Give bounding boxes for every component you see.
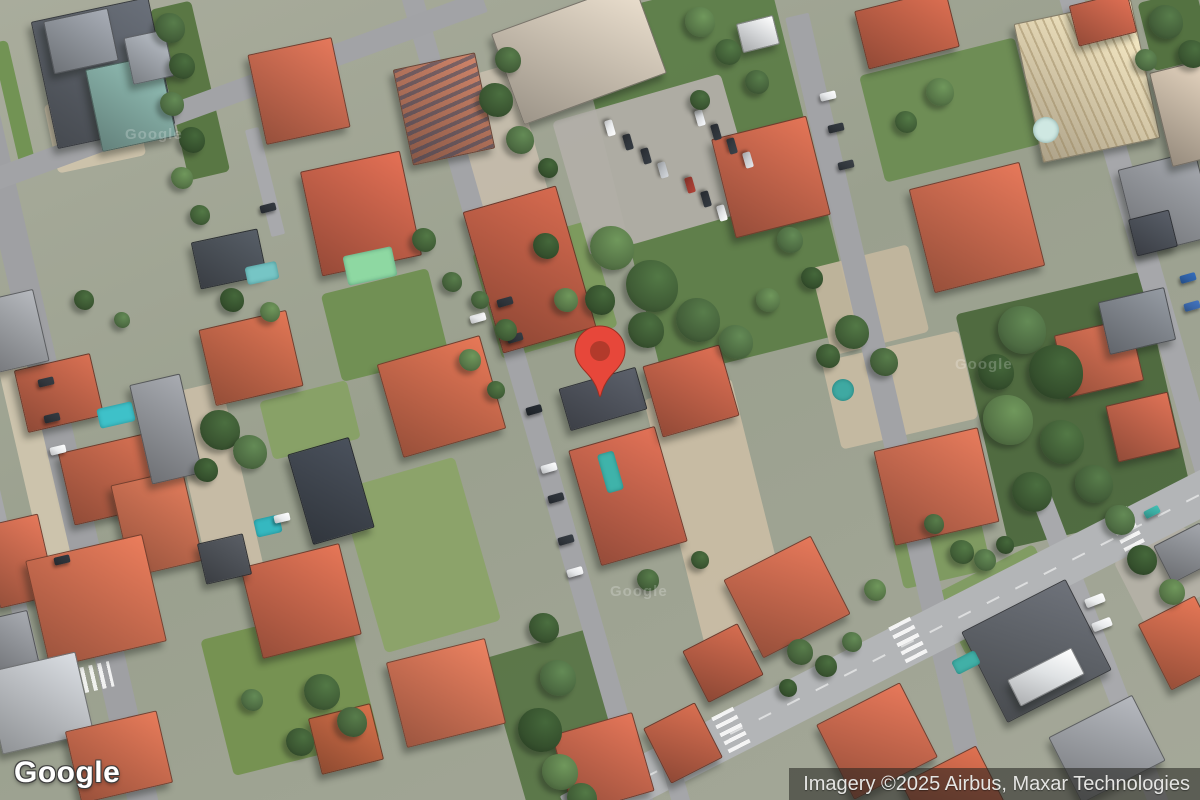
tree (179, 127, 205, 153)
building (386, 638, 506, 748)
ground-patch (339, 457, 501, 653)
tree (801, 267, 823, 289)
tree (983, 395, 1033, 445)
tree (1075, 465, 1113, 503)
tree (220, 288, 244, 312)
imagery-watermark: Google (610, 583, 668, 600)
tree (171, 167, 193, 189)
building (1128, 209, 1178, 256)
parked-car (1179, 272, 1197, 284)
building (909, 161, 1045, 292)
tree (554, 288, 578, 312)
tree (974, 549, 996, 571)
tree (540, 660, 576, 696)
tree (685, 7, 715, 37)
tree (870, 348, 898, 376)
tree (950, 540, 974, 564)
tree (691, 551, 709, 569)
map-canvas[interactable]: GoogleGoogleGoogle Google Imagery ©2025 … (0, 0, 1200, 800)
swimming-pool (832, 379, 854, 401)
tree (864, 579, 886, 601)
tree (1105, 505, 1135, 535)
tree (1012, 472, 1052, 512)
tree (585, 285, 615, 315)
tree (628, 312, 664, 348)
tree (471, 291, 489, 309)
tree (756, 288, 780, 312)
tree (1029, 345, 1083, 399)
tree (779, 679, 797, 697)
tree (1149, 5, 1183, 39)
tree (241, 689, 263, 711)
tree (479, 83, 513, 117)
tree (1127, 545, 1157, 575)
tree (190, 205, 210, 225)
tree (816, 344, 840, 368)
tree (155, 13, 185, 43)
tree (169, 53, 195, 79)
tree (412, 228, 436, 252)
tree (1159, 579, 1185, 605)
tree (160, 92, 184, 116)
tree (926, 78, 954, 106)
tree (626, 260, 678, 312)
pin-inner-dot (590, 341, 610, 361)
tree (835, 315, 869, 349)
tree (998, 306, 1046, 354)
tree (538, 158, 558, 178)
google-logo[interactable]: Google (14, 756, 120, 790)
tree (459, 349, 481, 371)
tree (529, 613, 559, 643)
tree (114, 312, 130, 328)
tree (337, 707, 367, 737)
tree (1040, 420, 1084, 464)
tree (194, 458, 218, 482)
building (198, 310, 303, 406)
tree (895, 111, 917, 133)
swimming-pool (96, 401, 136, 429)
tree (533, 233, 559, 259)
tree (842, 632, 862, 652)
tree (996, 536, 1014, 554)
tree (495, 47, 521, 73)
tree (815, 655, 837, 677)
tree (676, 298, 720, 342)
tree (787, 639, 813, 665)
tree (286, 728, 314, 756)
building (287, 437, 374, 545)
tree (495, 319, 517, 341)
tree (590, 226, 634, 270)
swimming-pool (1033, 117, 1059, 143)
tree (690, 90, 710, 110)
tree (74, 290, 94, 310)
tree (260, 302, 280, 322)
tree (719, 325, 753, 359)
tree (233, 435, 267, 469)
tree (715, 39, 741, 65)
tree (304, 674, 340, 710)
tree (745, 70, 769, 94)
imagery-watermark: Google (955, 356, 1013, 373)
tree (487, 381, 505, 399)
tree (1135, 49, 1157, 71)
pin-body (575, 326, 625, 397)
map-pin-marker[interactable] (573, 325, 627, 398)
tree (924, 514, 944, 534)
tree (518, 708, 562, 752)
parked-car (1183, 300, 1200, 312)
building (247, 37, 350, 145)
tree (506, 126, 534, 154)
imagery-watermark: Google (125, 126, 183, 143)
parked-car (469, 312, 487, 324)
tree (777, 227, 803, 253)
tree (442, 272, 462, 292)
building (1149, 59, 1200, 166)
imagery-attribution: Imagery ©2025 Airbus, Maxar Technologies (789, 768, 1200, 800)
road (245, 127, 285, 237)
building (393, 52, 496, 165)
